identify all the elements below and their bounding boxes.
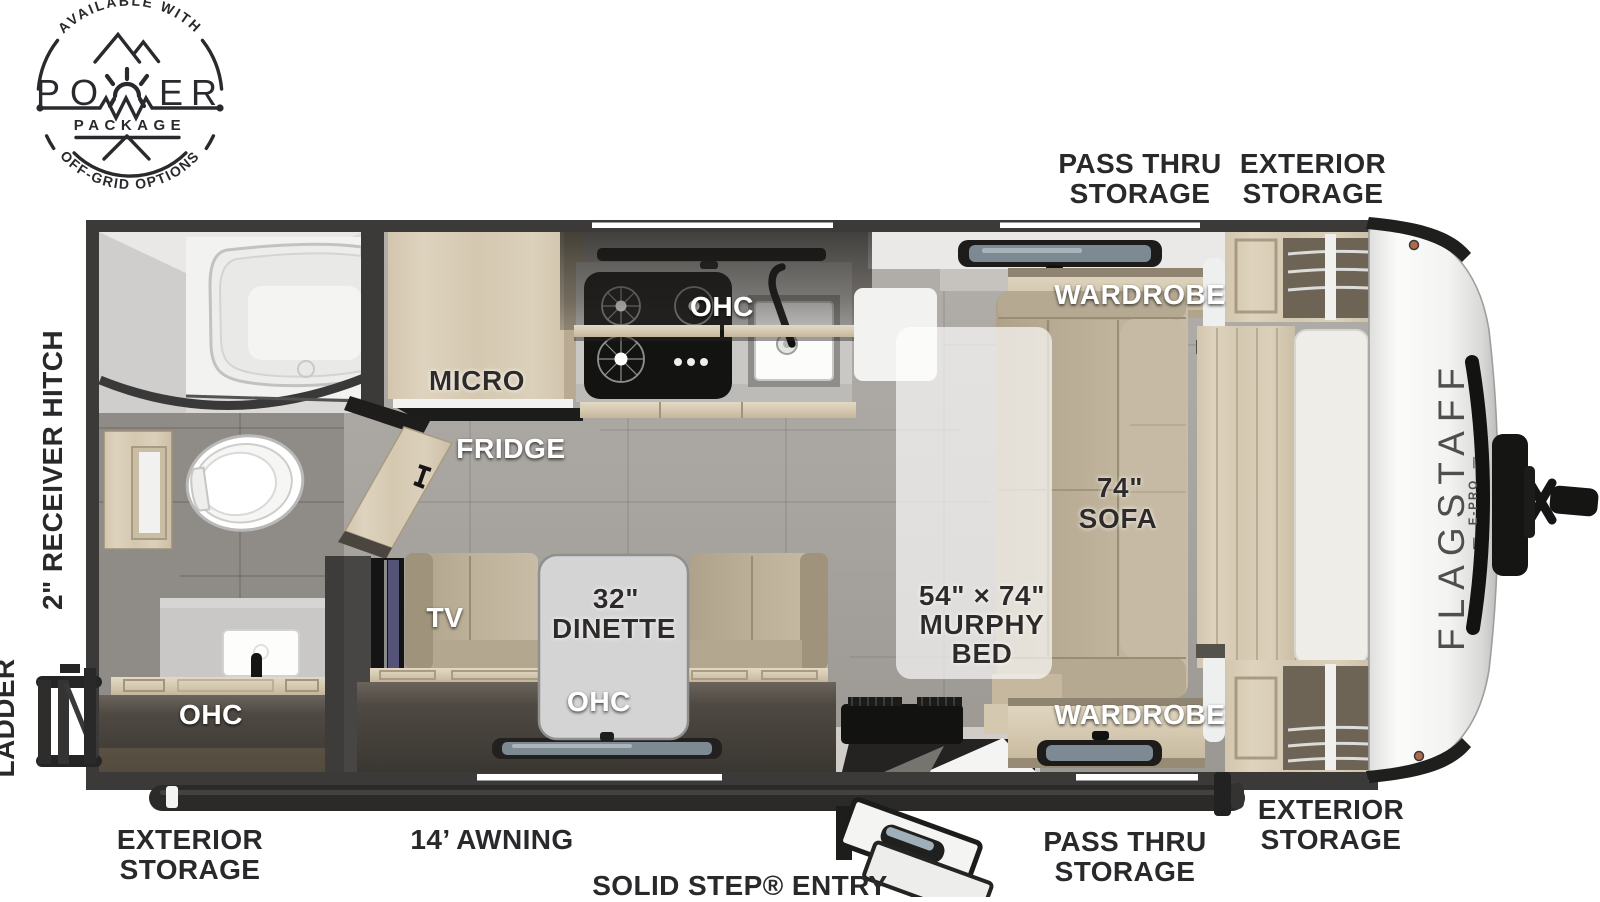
- svg-text:PASS THRU: PASS THRU: [1043, 826, 1206, 857]
- svg-text:BED: BED: [952, 638, 1013, 669]
- svg-text:FRIDGE: FRIDGE: [456, 433, 565, 464]
- svg-text:PASS THRU: PASS THRU: [1058, 148, 1221, 179]
- svg-text:DINETTE: DINETTE: [552, 613, 676, 644]
- svg-text:OHC: OHC: [567, 686, 631, 717]
- svg-text:WARDROBE: WARDROBE: [1054, 699, 1225, 730]
- svg-text:32": 32": [593, 583, 639, 614]
- svg-text:EXTERIOR: EXTERIOR: [1258, 794, 1404, 825]
- svg-text:14’ AWNING: 14’ AWNING: [410, 824, 573, 855]
- svg-text:2" RECEIVER HITCH: 2" RECEIVER HITCH: [37, 330, 68, 610]
- svg-text:AVAILABLE WITH: AVAILABLE WITH: [55, 0, 206, 36]
- svg-text:STORAGE: STORAGE: [120, 854, 261, 885]
- svg-text:PACKAGE: PACKAGE: [74, 117, 186, 134]
- svg-text:LADDER: LADDER: [0, 658, 20, 777]
- svg-text:OHC: OHC: [690, 291, 754, 322]
- svg-text:STORAGE: STORAGE: [1261, 824, 1402, 855]
- svg-text:OFF-GRID OPTIONS: OFF-GRID OPTIONS: [57, 147, 203, 192]
- svg-text:OHC: OHC: [179, 699, 243, 730]
- svg-text:TV: TV: [427, 602, 464, 633]
- svg-text:SOFA: SOFA: [1079, 503, 1158, 534]
- svg-text:MICRO: MICRO: [429, 365, 525, 396]
- svg-text:STORAGE: STORAGE: [1243, 178, 1384, 209]
- svg-text:SOLID STEP® ENTRY: SOLID STEP® ENTRY: [592, 870, 888, 897]
- svg-text:WARDROBE: WARDROBE: [1054, 279, 1225, 310]
- svg-text:54" × 74": 54" × 74": [919, 580, 1045, 611]
- svg-text:FLAGSTAFF: FLAGSTAFF: [1431, 359, 1472, 651]
- svg-text:EXTERIOR: EXTERIOR: [1240, 148, 1386, 179]
- svg-text:MURPHY: MURPHY: [920, 609, 1045, 640]
- svg-text:STORAGE: STORAGE: [1070, 178, 1211, 209]
- svg-text:— E-PRO —: — E-PRO —: [1468, 455, 1480, 549]
- svg-text:EXTERIOR: EXTERIOR: [117, 824, 263, 855]
- svg-text:STORAGE: STORAGE: [1055, 856, 1196, 887]
- svg-text:74": 74": [1097, 472, 1143, 503]
